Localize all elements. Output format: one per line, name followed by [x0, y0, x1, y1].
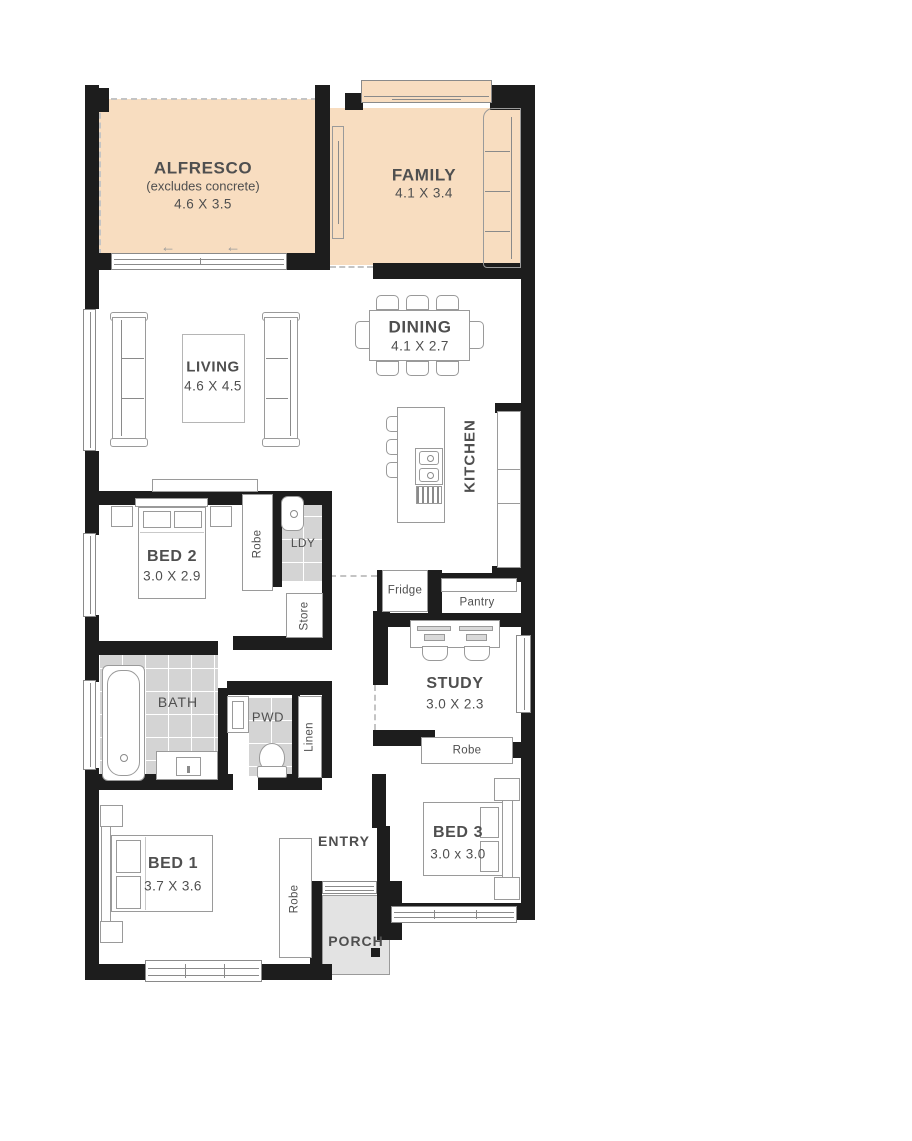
nightstand: [210, 506, 232, 527]
family-opening-dashed: [330, 266, 373, 268]
label-bed2: BED 2: [147, 549, 197, 565]
bed1-bed: [111, 835, 213, 912]
sofa-family: [483, 108, 521, 268]
pwd-vanity: [227, 696, 249, 733]
label-study-dims: 3.0 X 2.3: [426, 697, 484, 711]
label-porch: PORCH: [328, 934, 384, 948]
pantry-shelf: [441, 578, 517, 592]
window-bed1-bottom: [145, 960, 262, 982]
dining-chair: [355, 321, 370, 349]
label-dining: DINING: [388, 319, 451, 336]
nightstand: [111, 506, 133, 527]
hall-opening-dashed: [330, 575, 377, 577]
nightstand: [494, 877, 520, 900]
label-bed2-dims: 3.0 X 2.9: [143, 569, 201, 583]
dining-chair: [469, 321, 484, 349]
label-family: FAMILY: [392, 167, 456, 184]
label-pantry: Pantry: [459, 597, 494, 609]
label-fridge: Fridge: [388, 585, 422, 597]
dining-chair: [376, 361, 399, 376]
wall-segment: [85, 768, 99, 980]
wall-segment: [85, 253, 113, 270]
sofa-living-right: [264, 317, 298, 439]
label-study: STUDY: [426, 676, 483, 692]
slide-arrow-icon: ←: [226, 239, 241, 256]
sofa-living-left: [112, 317, 146, 439]
label-bed1: BED 1: [148, 856, 198, 872]
label-robe-bed1: Robe: [289, 885, 301, 914]
label-entry: ENTRY: [318, 834, 370, 848]
tv-unit-family: [332, 126, 344, 239]
window-study-right: [516, 635, 531, 713]
dining-chair: [406, 295, 429, 310]
wall-segment: [233, 636, 332, 650]
bed2-headboard: [135, 498, 208, 507]
wall-segment: [322, 681, 332, 778]
label-kitchen: KITCHEN: [463, 419, 478, 493]
label-bed3-dims: 3.0 x 3.0: [430, 847, 485, 861]
wall-segment: [490, 85, 535, 110]
study-chair: [464, 646, 490, 661]
sliding-door-alfresco: [111, 253, 287, 270]
study-dashed-left: [374, 685, 376, 730]
label-bath: BATH: [158, 695, 198, 709]
window-bed3-bottom: [391, 906, 517, 923]
wall-segment: [521, 93, 535, 920]
wall-segment: [372, 774, 386, 828]
dining-chair: [376, 295, 399, 310]
bed1-headboard: [101, 826, 111, 922]
wall-segment: [285, 253, 315, 270]
label-living: LIVING: [186, 360, 240, 375]
window-family-top: [361, 80, 492, 103]
label-robe-bed2: Robe: [252, 530, 264, 559]
dishwasher: [416, 486, 442, 504]
dining-chair: [406, 361, 429, 376]
wall-segment: [85, 85, 99, 309]
label-alfresco-note: (excludes concrete): [146, 180, 259, 193]
label-living-dims: 4.6 X 4.5: [184, 379, 242, 393]
label-ldy: LDY: [291, 537, 315, 549]
wall-segment: [322, 491, 332, 638]
bed3-headboard: [502, 800, 513, 878]
window-living-left: [83, 309, 96, 451]
kitchen-sink: [415, 448, 443, 485]
sofa-armrest: [262, 438, 300, 447]
label-dining-dims: 4.1 X 2.7: [391, 339, 449, 353]
sofa-armrest: [110, 438, 148, 447]
laundry-tub: [281, 496, 304, 531]
study-chair: [422, 646, 448, 661]
label-pwd: PWD: [252, 711, 284, 724]
alfresco-dashed-top: [101, 98, 317, 100]
tv-unit-living: [152, 479, 258, 492]
wall-segment: [227, 681, 330, 695]
label-bed1-dims: 3.7 X 3.6: [144, 879, 202, 893]
front-door: [322, 881, 377, 894]
nightstand: [100, 805, 123, 827]
wall-segment: [315, 85, 330, 270]
wall-segment: [85, 641, 218, 655]
study-desk: [410, 620, 500, 648]
cooktop: [497, 469, 521, 504]
label-robe-bed3: Robe: [453, 745, 482, 757]
window-bed2-left: [83, 533, 96, 617]
bathtub: [102, 665, 145, 781]
dining-chair: [436, 295, 459, 310]
bath-vanity: [156, 751, 218, 780]
nightstand: [100, 921, 123, 943]
wall-segment: [377, 826, 390, 905]
toilet-tank: [257, 766, 287, 778]
window-bath-left: [83, 680, 96, 770]
label-alfresco: ALFRESCO: [154, 160, 252, 177]
porch-door-marker: [371, 948, 380, 957]
alfresco-dashed-left: [99, 103, 101, 255]
floor-plan: ← ← ALFRESCO (excludes concrete) 4.6 X 3…: [0, 0, 912, 1141]
nightstand: [494, 778, 520, 801]
label-alfresco-dims: 4.6 X 3.5: [174, 197, 232, 211]
dining-chair: [436, 361, 459, 376]
slide-arrow-icon: ←: [161, 239, 176, 256]
label-bed3: BED 3: [433, 825, 483, 841]
label-store: Store: [299, 602, 311, 631]
label-linen: Linen: [304, 722, 316, 752]
label-family-dims: 4.1 X 3.4: [395, 186, 453, 200]
